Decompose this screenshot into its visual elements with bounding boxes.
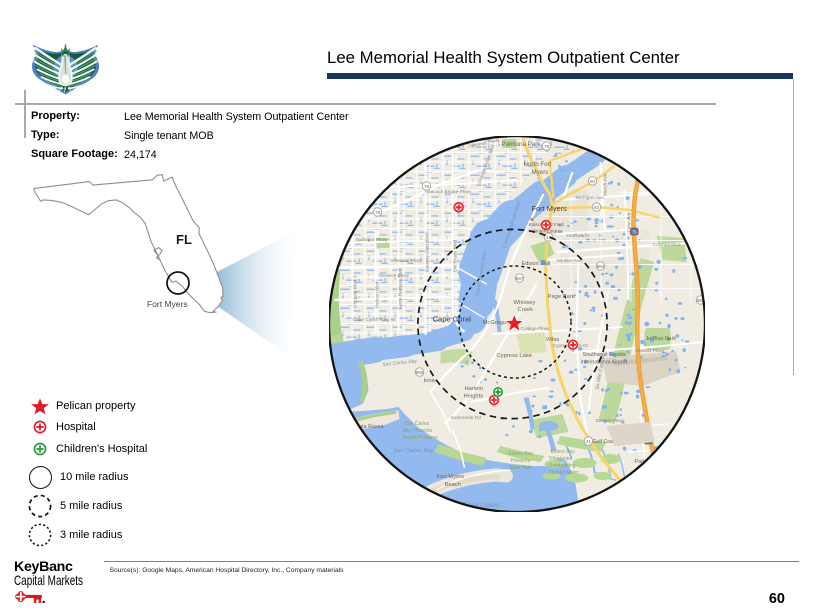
svg-text:78: 78	[374, 210, 380, 215]
svg-text:Marsh Ave: Marsh Ave	[602, 173, 608, 196]
svg-text:80: 80	[589, 179, 595, 184]
svg-text:Pelican Blvd: Pelican Blvd	[374, 281, 380, 308]
svg-text:Daniels Pkwy: Daniels Pkwy	[635, 348, 664, 354]
svg-text:State Park: State Park	[508, 465, 532, 471]
svg-text:Myers: Myers	[531, 169, 548, 176]
svg-text:Santa Barbara Blvd: Santa Barbara Blvd	[397, 268, 403, 310]
svg-text:Chiquita Blvd S: Chiquita Blvd S	[352, 275, 358, 308]
svg-text:Outstanding: Outstanding	[548, 463, 575, 469]
svg-text:Whiskey: Whiskey	[513, 300, 535, 306]
svg-text:Winkler Ave: Winkler Ave	[556, 258, 582, 264]
svg-text:Heights: Heights	[463, 394, 483, 400]
svg-text:Trafalgar Pkwy: Trafalgar Pkwy	[355, 237, 387, 243]
svg-text:Ortiz Ave: Ortiz Ave	[626, 212, 632, 232]
svg-text:McGregor: McGregor	[482, 320, 508, 326]
svg-text:78: 78	[543, 144, 549, 149]
svg-text:Veterans Pkwy: Veterans Pkwy	[390, 258, 422, 264]
svg-text:Cape Coral Pkwy W: Cape Coral Pkwy W	[352, 317, 395, 323]
svg-text:82: 82	[593, 205, 599, 210]
svg-text:Edison Mall: Edison Mall	[521, 261, 550, 267]
svg-text:Tributaries: Tributaries	[548, 456, 572, 462]
svg-text:Iona: Iona	[423, 378, 435, 384]
svg-text:Estero Bay: Estero Bay	[550, 449, 575, 455]
svg-text:North Fort: North Fort	[523, 161, 551, 168]
svg-text:Summerlin Rd: Summerlin Rd	[450, 415, 481, 421]
svg-text:Daniels Pkwy: Daniels Pkwy	[595, 418, 624, 424]
svg-text:Gleason Pkwy: Gleason Pkwy	[378, 273, 409, 279]
svg-text:Country Club Blvd: Country Club Blvd	[424, 233, 430, 272]
svg-text:865: 865	[415, 370, 423, 375]
svg-text:Palmona Park: Palmona Park	[501, 141, 541, 148]
svg-text:Fort Myers: Fort Myers	[436, 474, 464, 480]
svg-text:College Pkwy: College Pkwy	[520, 326, 550, 332]
svg-text:Colonial Blvd: Colonial Blvd	[652, 242, 680, 248]
svg-text:Florida Water: Florida Water	[548, 470, 578, 476]
svg-text:Hanson St: Hanson St	[566, 233, 589, 239]
svg-text:Beach Preserve: Beach Preserve	[402, 435, 438, 441]
svg-text:FL: FL	[176, 232, 192, 247]
svg-text:867: 867	[515, 276, 523, 281]
svg-text:San Carlos Bay: San Carlos Bay	[393, 448, 434, 454]
svg-text:Del Prado Blvd: Del Prado Blvd	[452, 240, 458, 272]
svg-text:Bay / Bunche: Bay / Bunche	[402, 428, 432, 434]
svg-text:Cypress Lake: Cypress Lake	[496, 353, 531, 359]
svg-text:Preserve: Preserve	[510, 458, 530, 464]
svg-text:Creek: Creek	[517, 307, 533, 313]
svg-text:San Carlos: San Carlos	[658, 457, 683, 463]
svg-text:Estero Bay: Estero Bay	[508, 451, 533, 457]
svg-text:Harlem: Harlem	[464, 386, 483, 392]
svg-text:Michigan Ave: Michigan Ave	[575, 195, 604, 201]
svg-text:Beach: Beach	[444, 482, 460, 488]
svg-text:Page Park: Page Park	[547, 294, 574, 300]
svg-text:Fort Myers: Fort Myers	[147, 299, 188, 309]
svg-text:JetBlue Park: JetBlue Park	[645, 336, 676, 342]
svg-text:75: 75	[631, 229, 636, 234]
svg-text:San Carlos: San Carlos	[404, 421, 429, 427]
svg-text:78: 78	[423, 184, 429, 189]
svg-text:Hancock Bridge Pkwy: Hancock Bridge Pkwy	[424, 189, 471, 195]
svg-text:41: 41	[585, 439, 591, 444]
svg-text:Cape Coral: Cape Coral	[432, 315, 471, 324]
svg-text:884: 884	[596, 264, 604, 269]
svg-text:Villas: Villas	[545, 337, 559, 343]
svg-text:Fort Myers: Fort Myers	[531, 204, 567, 213]
